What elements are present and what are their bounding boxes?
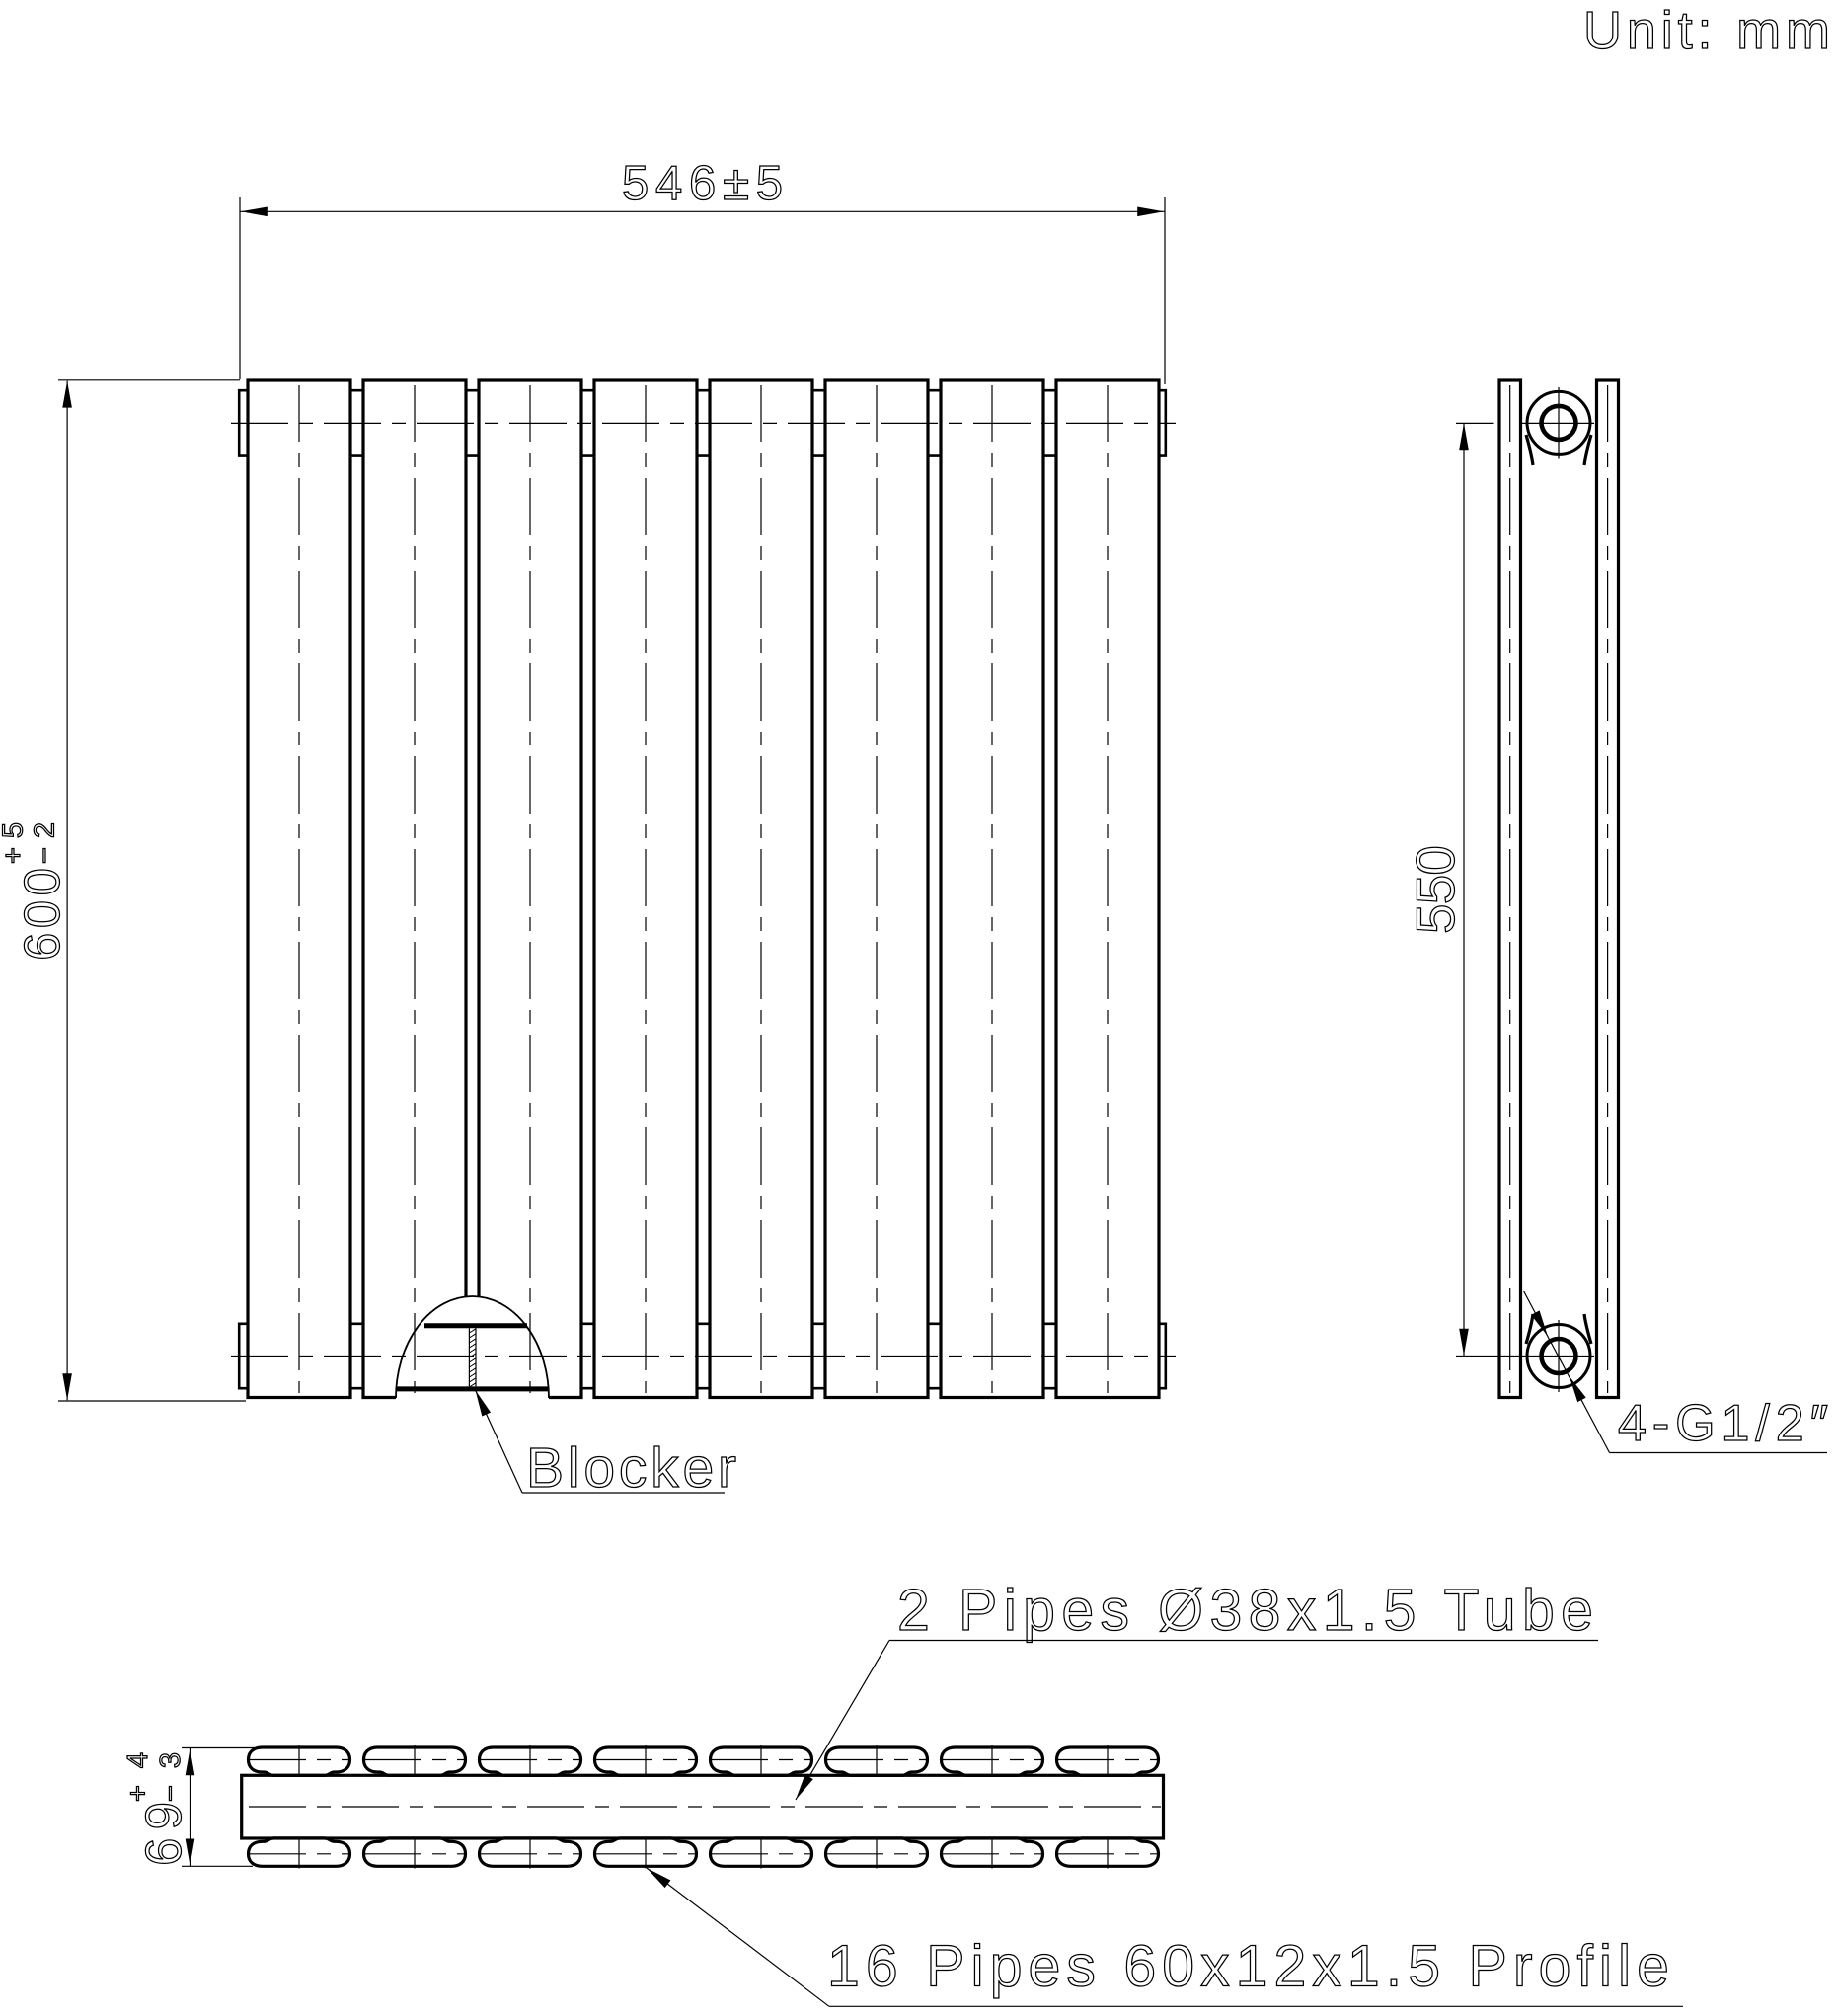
svg-text:Blocker: Blocker — [526, 1436, 736, 1500]
svg-text:546±5: 546±5 — [622, 157, 783, 210]
svg-text:Unit: mm: Unit: mm — [1583, 1, 1830, 60]
svg-text:550: 550 — [1405, 845, 1466, 934]
svg-text:600: 600 — [14, 868, 70, 961]
svg-text:16 Pipes 60x12x1.5 Profile: 16 Pipes 60x12x1.5 Profile — [827, 1933, 1669, 1998]
